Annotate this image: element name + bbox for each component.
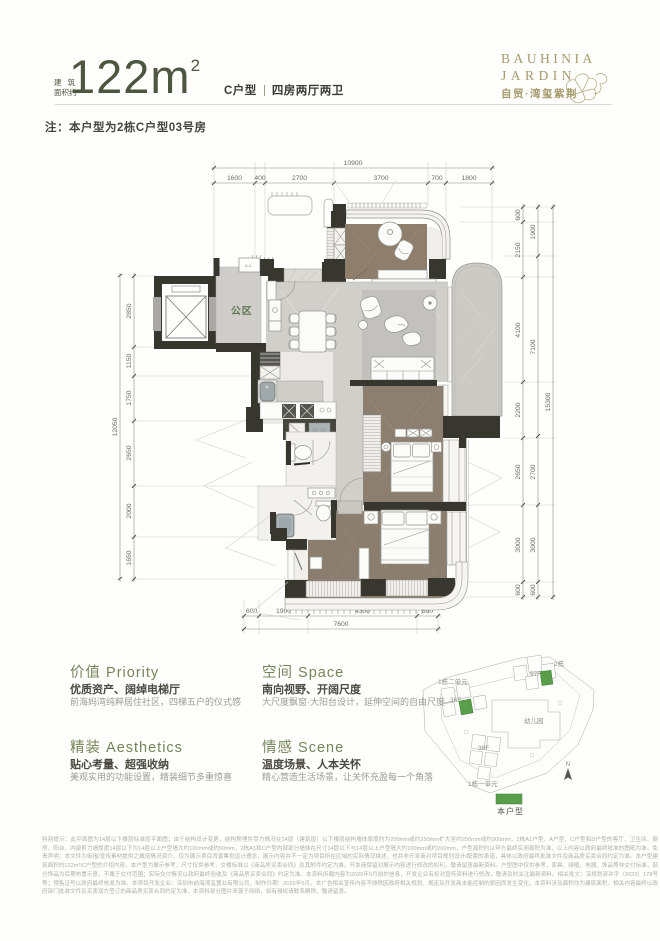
svg-text:3700: 3700 bbox=[373, 175, 388, 182]
svg-text:400: 400 bbox=[254, 175, 266, 182]
svg-text:2700: 2700 bbox=[292, 175, 307, 182]
svg-text:1栋二单元: 1栋二单元 bbox=[438, 677, 468, 686]
svg-text:2650: 2650 bbox=[126, 445, 133, 460]
svg-text:700: 700 bbox=[431, 175, 443, 182]
svg-text:2150: 2150 bbox=[515, 242, 522, 257]
svg-text:10900: 10900 bbox=[344, 160, 363, 167]
svg-text:A.C: A.C bbox=[245, 263, 252, 268]
svg-text:本户型: 本户型 bbox=[497, 806, 524, 816]
svg-text:2650: 2650 bbox=[515, 464, 522, 479]
svg-text:幼儿园: 幼儿园 bbox=[524, 716, 544, 725]
svg-text:2700: 2700 bbox=[530, 464, 537, 479]
svg-text:2000: 2000 bbox=[126, 503, 133, 518]
svg-text:1150: 1150 bbox=[126, 353, 133, 368]
svg-text:1900: 1900 bbox=[530, 224, 537, 239]
svg-text:3000: 3000 bbox=[530, 537, 537, 552]
svg-text:57F: 57F bbox=[530, 671, 541, 678]
svg-text:1栋一单元: 1栋一单元 bbox=[468, 779, 498, 788]
svg-text:36F: 36F bbox=[450, 697, 461, 704]
svg-text:1650: 1650 bbox=[126, 550, 133, 565]
svg-text:2栋: 2栋 bbox=[554, 659, 565, 668]
svg-text:3000: 3000 bbox=[515, 537, 522, 552]
svg-text:N: N bbox=[566, 761, 571, 768]
svg-text:600: 600 bbox=[515, 209, 522, 221]
svg-text:公区: 公区 bbox=[231, 305, 253, 317]
svg-text:1800: 1800 bbox=[461, 175, 476, 182]
svg-text:2200: 2200 bbox=[515, 402, 522, 417]
svg-text:15300: 15300 bbox=[545, 392, 552, 411]
svg-text:7100: 7100 bbox=[530, 339, 537, 354]
svg-text:600: 600 bbox=[530, 584, 537, 596]
svg-text:600: 600 bbox=[515, 584, 522, 596]
svg-text:7600: 7600 bbox=[333, 621, 348, 628]
svg-text:36F: 36F bbox=[478, 745, 489, 752]
svg-text:12050: 12050 bbox=[112, 417, 119, 436]
svg-text:4100: 4100 bbox=[515, 322, 522, 337]
svg-text:1600: 1600 bbox=[227, 175, 242, 182]
svg-text:2850: 2850 bbox=[126, 303, 133, 318]
svg-text:1750: 1750 bbox=[126, 390, 133, 405]
